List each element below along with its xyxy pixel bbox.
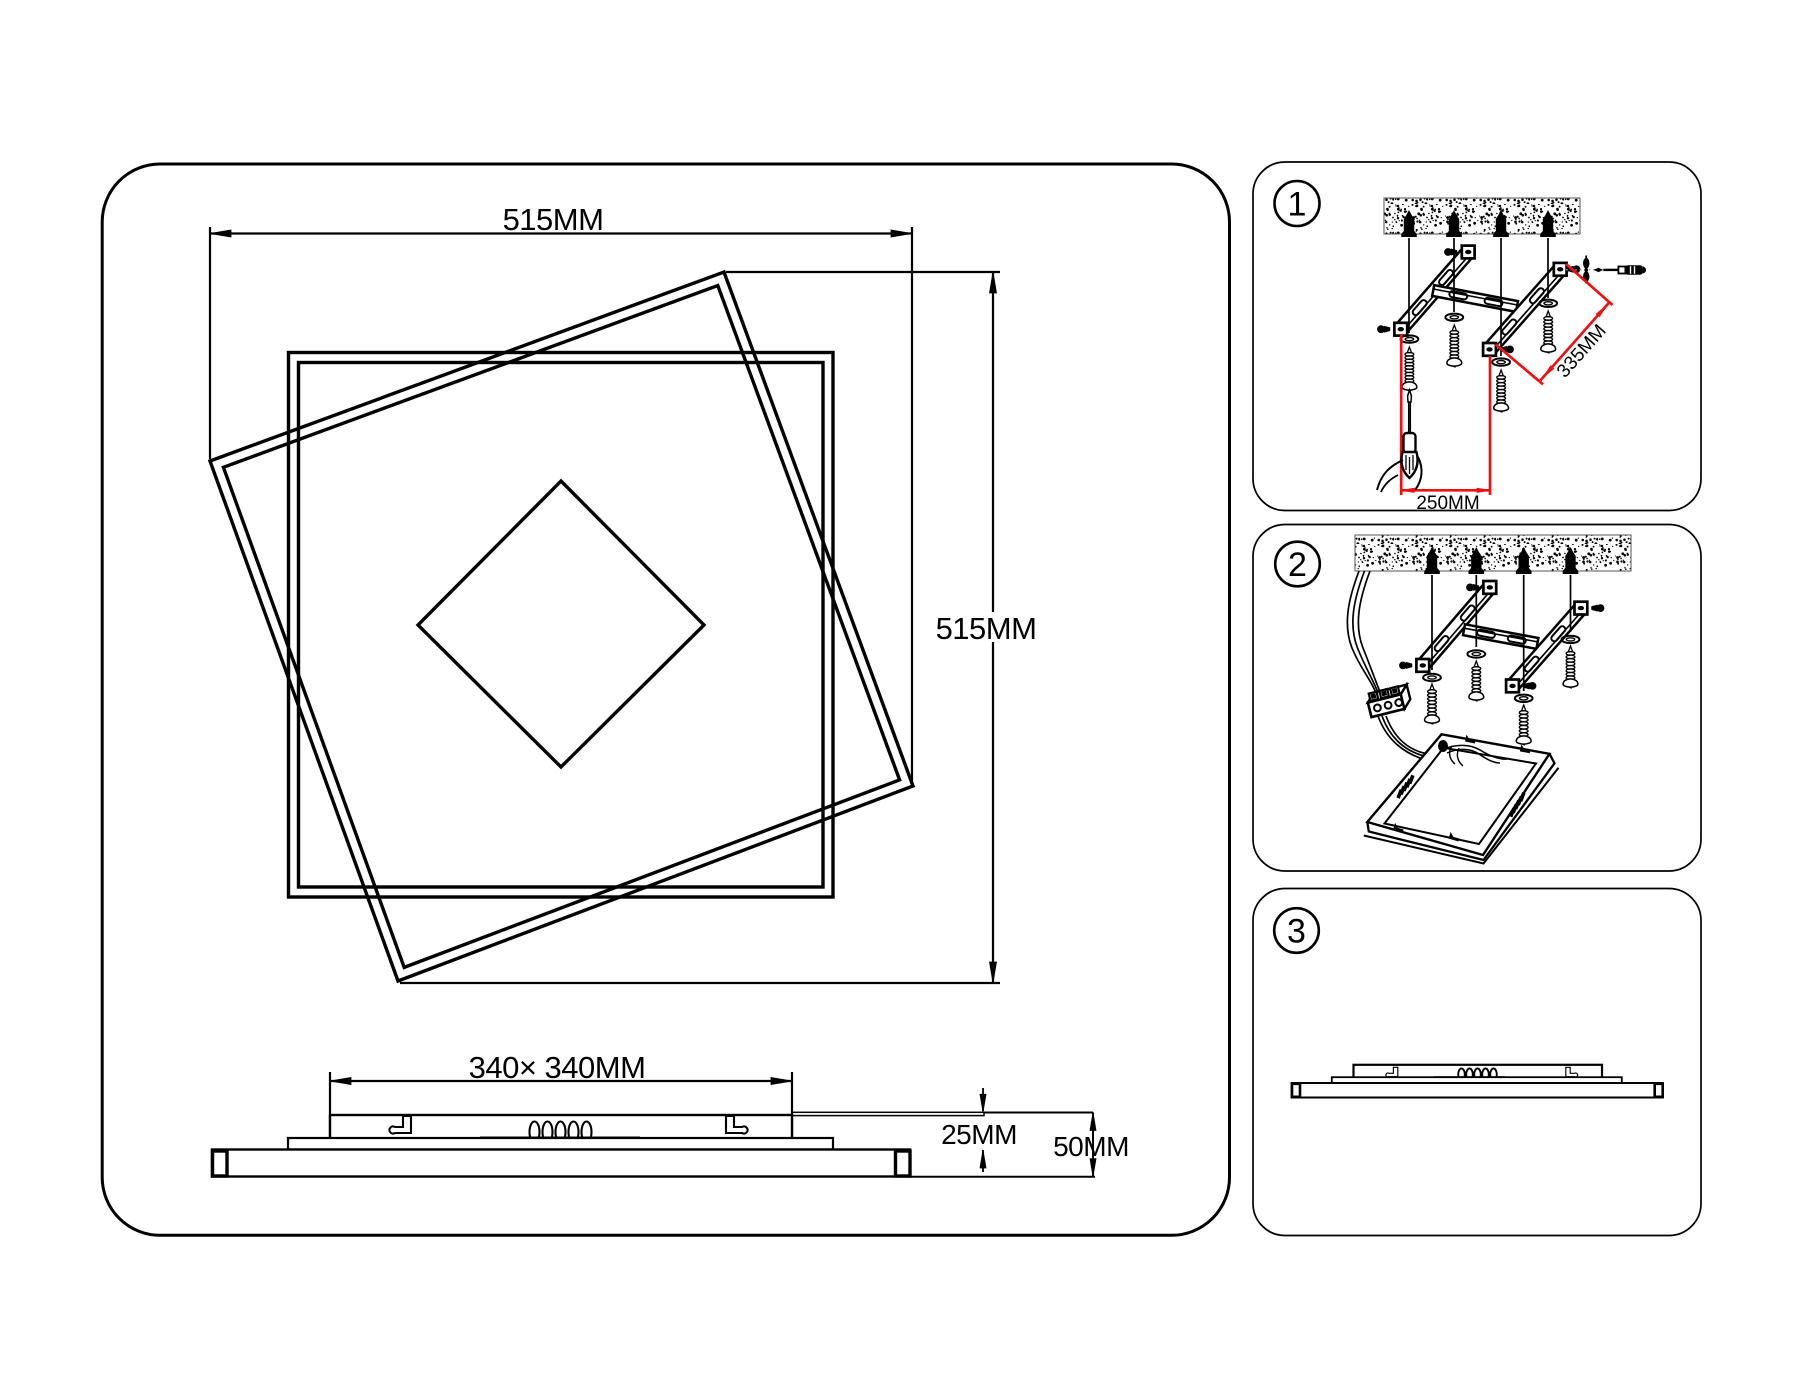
svg-text:340× 340MM: 340× 340MM [469,1050,646,1085]
svg-text:515MM: 515MM [936,611,1037,646]
svg-text:2: 2 [1288,546,1307,584]
svg-text:1: 1 [1288,186,1307,224]
svg-text:250MM: 250MM [1416,493,1479,514]
svg-text:3: 3 [1287,913,1306,951]
svg-text:50MM: 50MM [1053,1131,1129,1162]
svg-text:515MM: 515MM [503,202,604,237]
svg-text:25MM: 25MM [941,1119,1017,1150]
